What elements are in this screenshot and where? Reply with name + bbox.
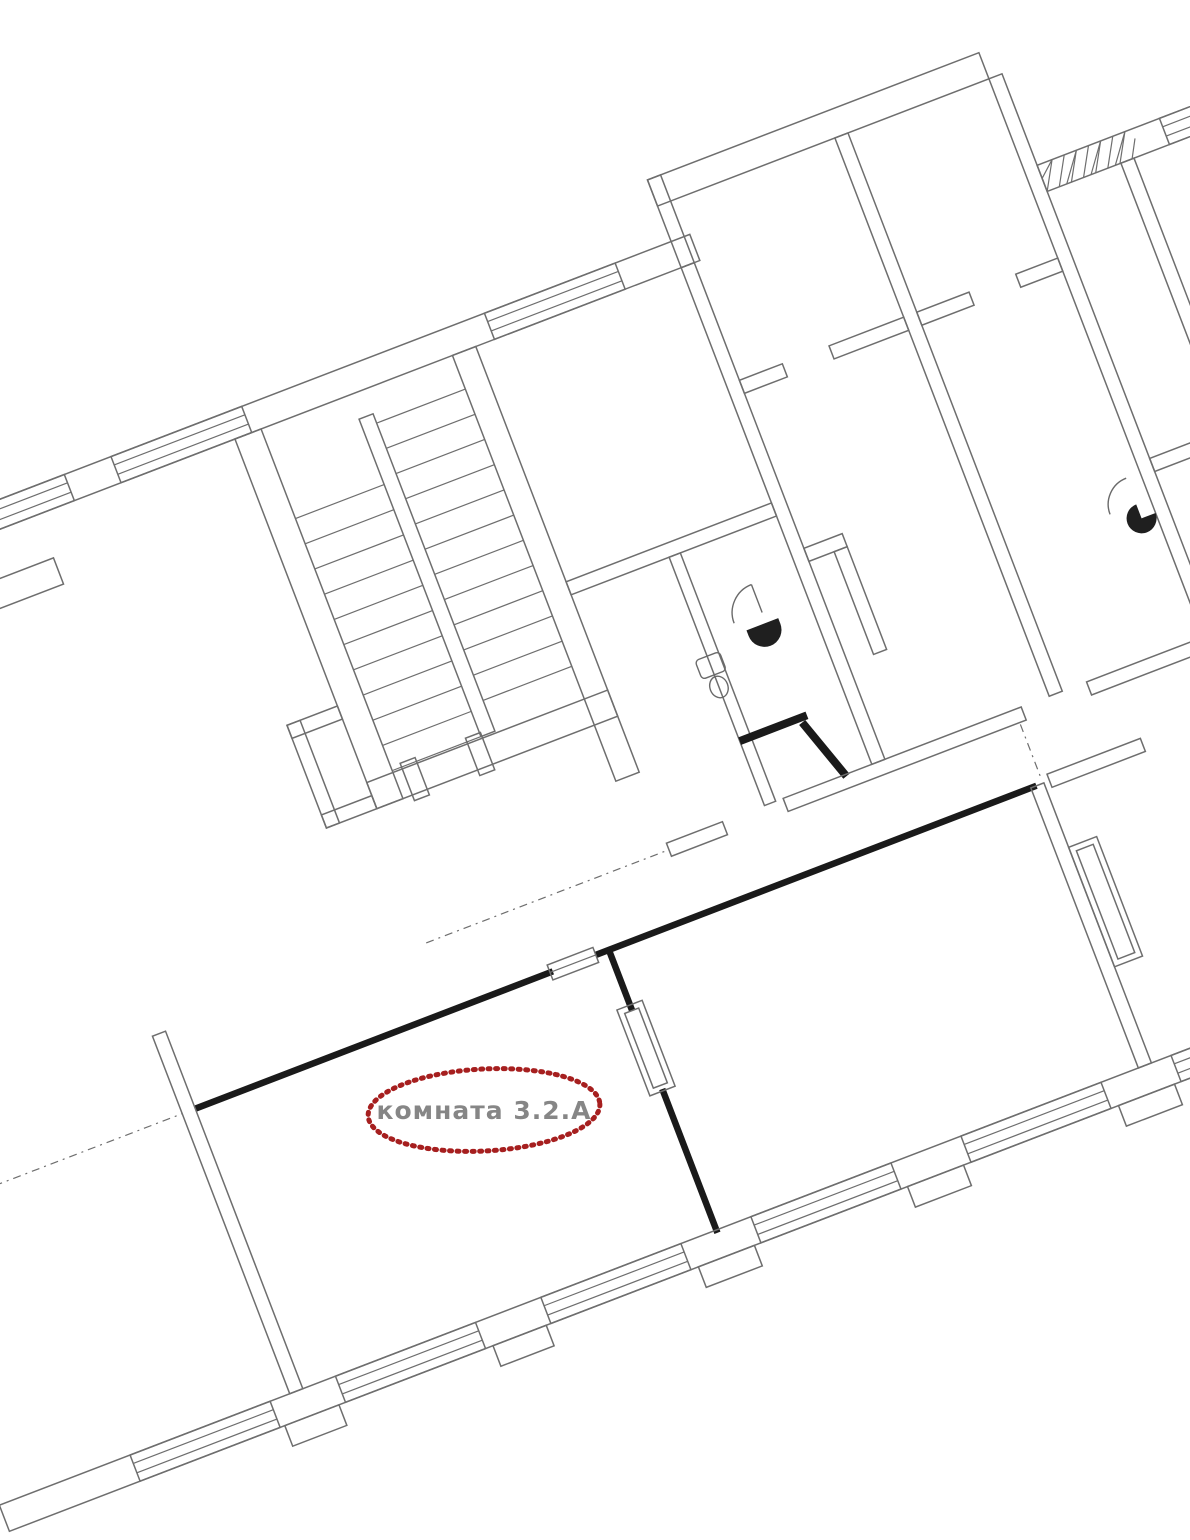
room-west-wall [152, 1031, 302, 1394]
north-exterior-wall [0, 53, 1013, 684]
room-annotation: комната 3.2.А [366, 1063, 602, 1157]
window-symbol [111, 406, 252, 482]
west-wing-south-wall [0, 558, 64, 753]
corridor [424, 637, 1190, 1017]
wall-opening-mark [802, 715, 846, 785]
window-symbol [961, 1082, 1111, 1162]
window-symbol [1171, 1002, 1190, 1082]
toilet-icon [695, 652, 735, 702]
window-symbol [541, 1244, 691, 1324]
top-rooms-north-wall [647, 53, 988, 206]
top-rooms-divider-wall [835, 133, 1062, 696]
wc-divider-wall [669, 553, 776, 806]
window-symbol [130, 1401, 280, 1481]
wc-block [566, 483, 924, 845]
wall-pier [493, 1325, 554, 1366]
wc-north-wall [566, 503, 776, 595]
wall-opening-mark [740, 715, 807, 741]
floor-plan-drawing: комната 3.2.А [0, 0, 1190, 1540]
wall-pier [1119, 1084, 1183, 1126]
window-symbol [751, 1163, 901, 1243]
window-symbol [1069, 837, 1143, 967]
top-rooms [658, 74, 1190, 838]
stair-balcony [287, 706, 377, 828]
sink-icon [746, 618, 786, 652]
right-room-east-wall [1031, 783, 1152, 1068]
staircase [185, 347, 640, 885]
dashed-opening-line [1020, 724, 1040, 776]
stair-treads-east [377, 389, 572, 700]
window-symbol [1159, 68, 1190, 144]
door-swing-dark-icon [1122, 499, 1161, 538]
wall-pier [698, 1245, 762, 1287]
south-exterior-wall [0, 953, 1190, 1540]
window-symbol [547, 947, 598, 979]
room-3-2-a-walls [0, 695, 1179, 1466]
window-symbol [335, 1322, 485, 1402]
highlighted-room-walls [192, 778, 1145, 1391]
stair-treads-west [295, 485, 480, 771]
room-label: комната 3.2.А [377, 1096, 592, 1125]
building-plan [0, 0, 1190, 1540]
top-rooms-east-wall [989, 74, 1190, 711]
window-symbol [484, 263, 625, 339]
wall-pier [285, 1405, 347, 1446]
door-swing-icon [723, 585, 762, 624]
stair-west-wall [235, 429, 403, 809]
window-symbol [0, 474, 74, 554]
wall-pier [908, 1165, 972, 1207]
floor-plan-page: комната 3.2.А [0, 0, 1190, 1540]
dashed-opening-line [426, 850, 669, 943]
hatched-wall [1037, 129, 1141, 191]
door-symbol [617, 1000, 675, 1096]
dash-dot-line [0, 1114, 182, 1186]
top-rooms-west-wall [681, 263, 885, 765]
